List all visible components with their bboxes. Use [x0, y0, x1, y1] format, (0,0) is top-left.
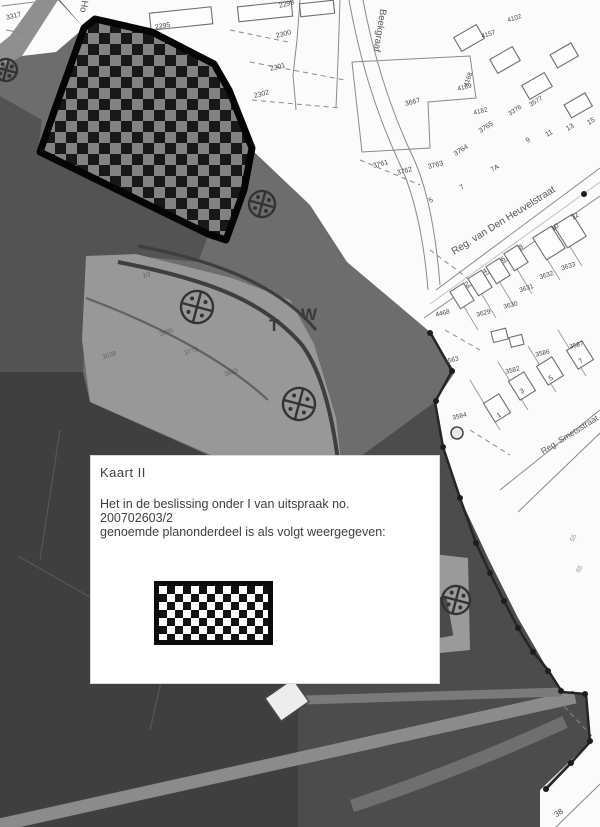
- street-name-label: Ho: [77, 0, 90, 13]
- legend-text-line-1: Het in de beslissing onder I van uitspra…: [100, 497, 386, 511]
- area-letter-label: T: [269, 316, 280, 335]
- building: [299, 0, 334, 16]
- scanned-plan-map-page: BeekgraafHoReg. van Den HeuvelstraatReg.…: [0, 0, 600, 827]
- legend-checker-swatch-icon: [154, 581, 273, 645]
- legend-title: Kaart II: [100, 465, 146, 480]
- legend-text-line-2: 200702603/2: [100, 511, 386, 525]
- area-letter-label: W: [301, 305, 318, 324]
- legend-text: Het in de beslissing onder I van uitspra…: [100, 497, 386, 539]
- legend-text-line-3: genoemde planonderdeel is als volgt weer…: [100, 525, 386, 539]
- legend-box: Kaart II Het in de beslissing onder I va…: [90, 455, 440, 684]
- map-canvas: BeekgraafHoReg. van Den HeuvelstraatReg.…: [0, 0, 600, 827]
